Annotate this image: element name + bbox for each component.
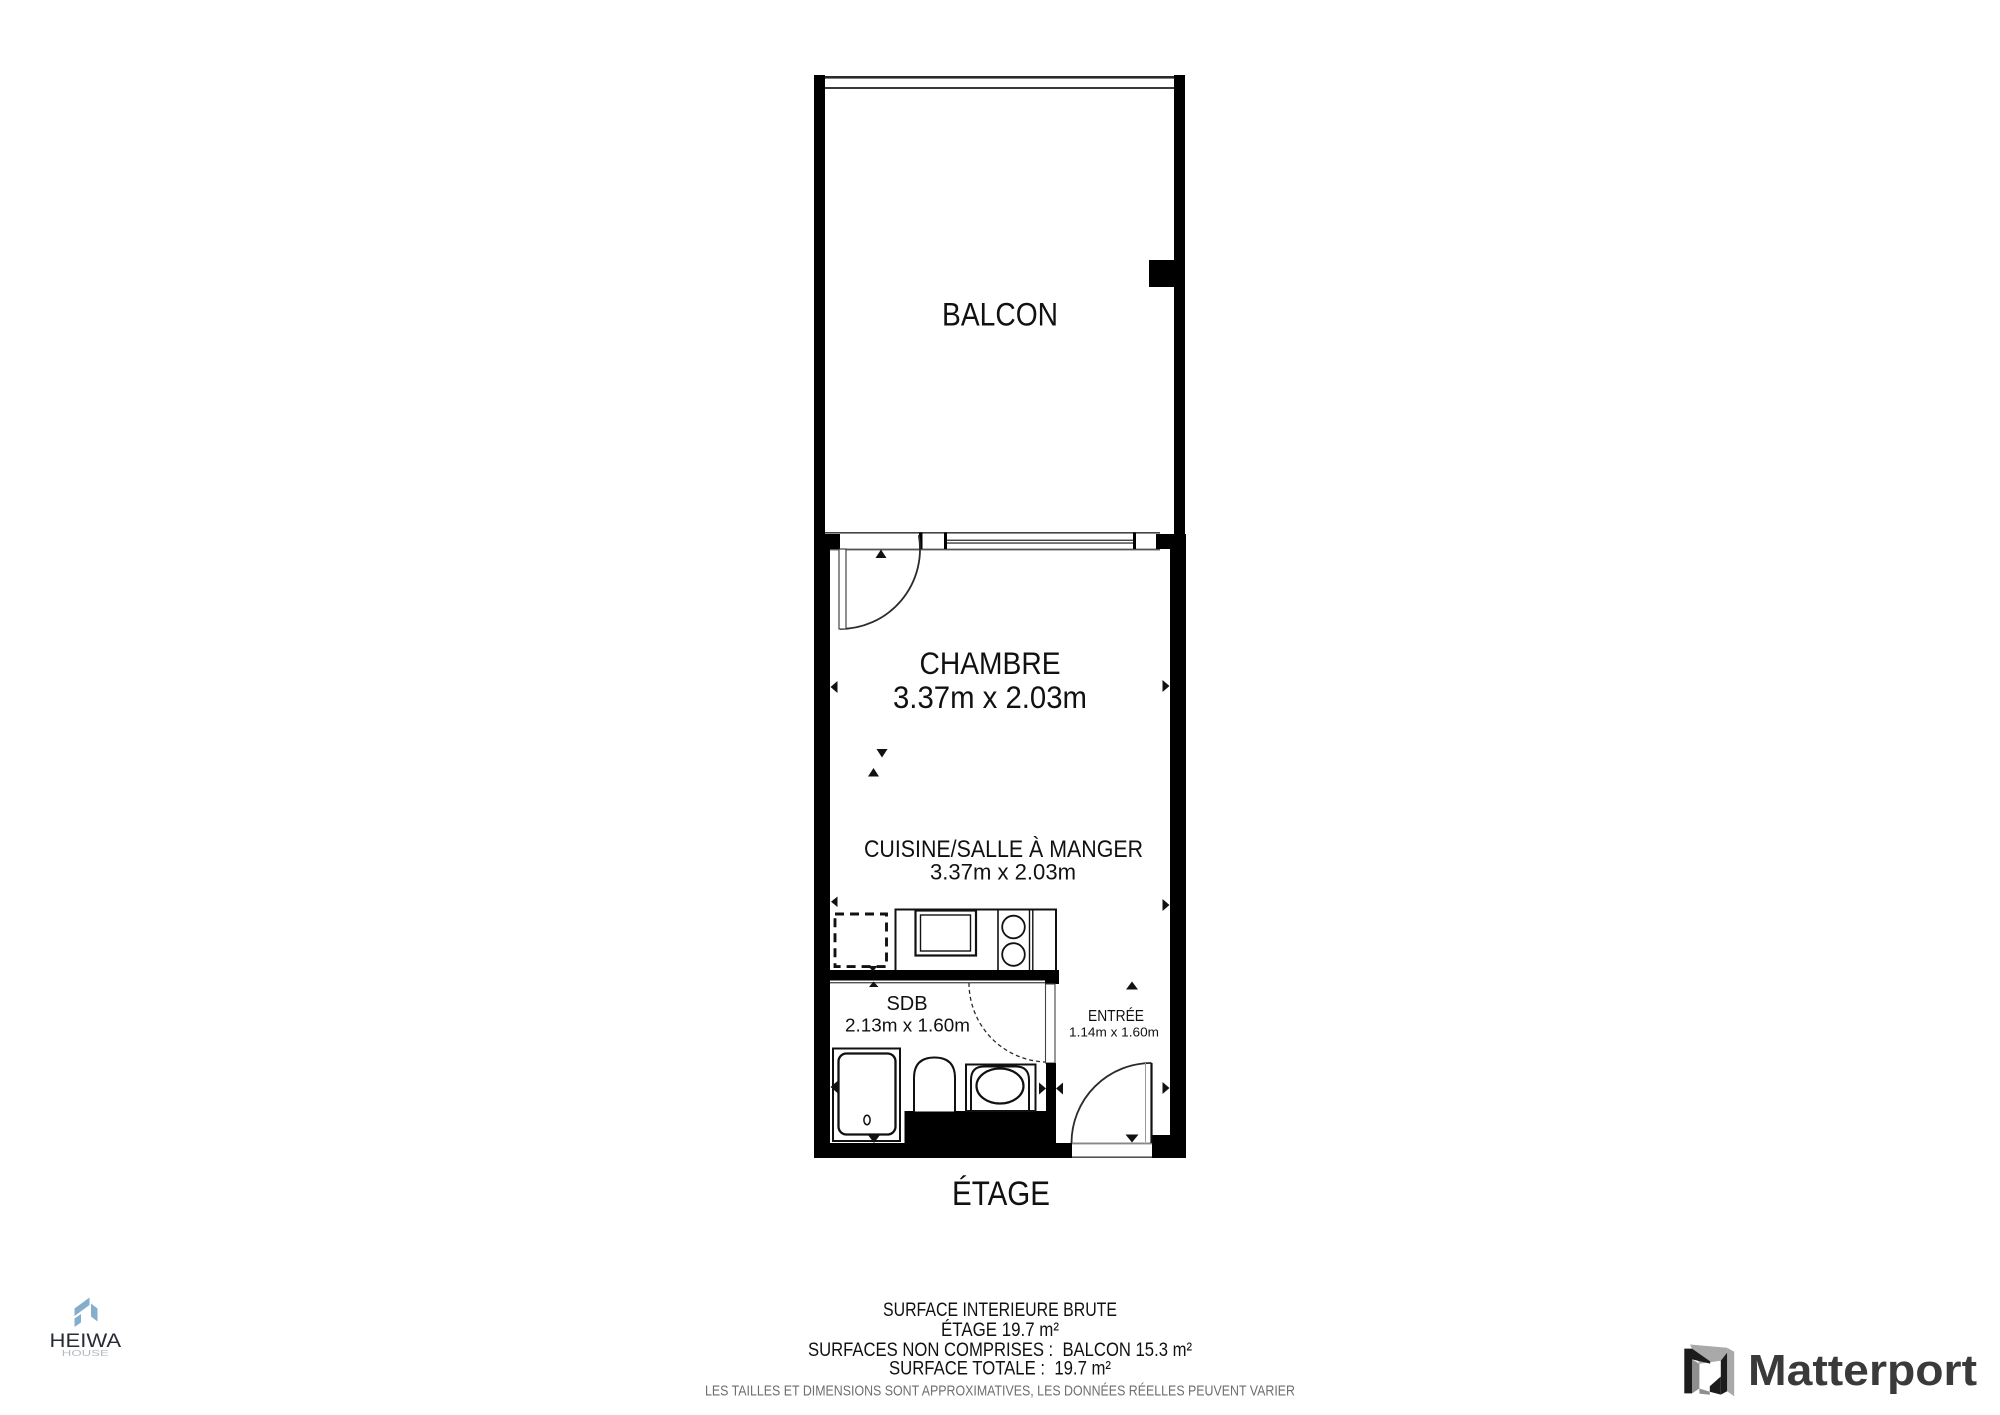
svg-text:ENTRÉE: ENTRÉE	[1088, 1008, 1144, 1025]
svg-text:3.37m x 2.03m: 3.37m x 2.03m	[930, 860, 1076, 885]
svg-text:BALCON: BALCON	[942, 297, 1058, 333]
svg-text:CHAMBRE: CHAMBRE	[920, 645, 1061, 681]
svg-text:ÉTAGE: ÉTAGE	[952, 1174, 1050, 1213]
svg-text:SDB: SDB	[886, 993, 927, 1015]
svg-text:1.14m x 1.60m: 1.14m x 1.60m	[1069, 1025, 1159, 1040]
svg-text:ÉTAGE 19.7 m²: ÉTAGE 19.7 m²	[941, 1320, 1059, 1341]
svg-text:2.13m x 1.60m: 2.13m x 1.60m	[845, 1015, 970, 1036]
svg-text:HOUSE: HOUSE	[62, 1349, 109, 1358]
svg-text:SURFACE INTERIEURE BRUTE: SURFACE INTERIEURE BRUTE	[883, 1300, 1117, 1321]
svg-text:LES TAILLES ET DIMENSIONS SONT: LES TAILLES ET DIMENSIONS SONT APPROXIMA…	[705, 1383, 1295, 1400]
svg-text:SURFACE TOTALE : 19.7 m²: SURFACE TOTALE : 19.7 m²	[889, 1359, 1111, 1380]
svg-text:3.37m x 2.03m: 3.37m x 2.03m	[893, 679, 1087, 715]
svg-text:Matterport: Matterport	[1748, 1346, 1977, 1395]
